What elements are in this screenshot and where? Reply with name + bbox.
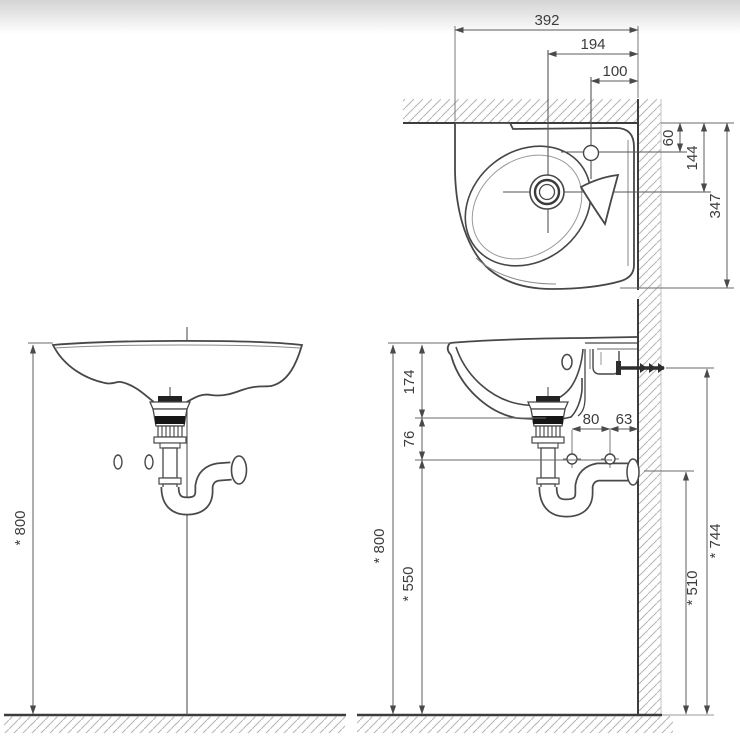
dim-plan-width: 392 <box>534 12 559 29</box>
side-fixing-lug <box>593 349 619 374</box>
front-fixing-slot-left <box>114 455 122 469</box>
technical-drawing-canvas: 392 194 100 60 144 347 <box>0 0 740 740</box>
dim-plan-depth: 347 <box>707 193 724 218</box>
dim-plan-wall-to-tap: 60 <box>660 130 677 147</box>
dim-side-bracket-height: * 744 <box>707 523 724 558</box>
dim-side-drain-to-fixing: 76 <box>401 431 418 448</box>
side-view: 174 76 * 550 * 800 80 63 * 744 * 510 <box>371 337 724 714</box>
side-tap-hole <box>562 355 572 370</box>
side-p-trap <box>548 459 639 508</box>
dim-side-rim-to-drain: 174 <box>401 369 418 394</box>
front-view: * 800 <box>12 327 302 715</box>
floor <box>4 715 714 733</box>
dim-plan-drain-to-wall: 194 <box>580 36 605 53</box>
dim-plan-tap-to-wall: 100 <box>602 63 627 80</box>
washbasin-drawing: 392 194 100 60 144 347 <box>0 0 740 740</box>
dim-side-fixing-height: * 550 <box>400 566 417 601</box>
plan-view: 392 194 100 60 144 347 <box>441 12 734 291</box>
dim-side-outlet-height: * 510 <box>684 570 701 605</box>
dim-side-hole-to-wall: 63 <box>616 411 633 428</box>
front-drain-assembly <box>150 387 190 489</box>
dim-side-hole-spacing: 80 <box>583 411 600 428</box>
dim-plan-wall-to-drain: 144 <box>684 145 701 170</box>
front-wall-rosette <box>232 456 247 484</box>
plan-back-wall-hatch <box>403 99 638 123</box>
floor-hatch-left <box>4 716 345 733</box>
floor-hatch-right <box>357 716 673 733</box>
side-deck-top <box>450 337 637 343</box>
side-wall-rosette <box>627 459 639 485</box>
front-basin-outline <box>53 341 302 403</box>
right-wall-hatch <box>638 99 661 715</box>
page-top-gradient <box>0 0 740 34</box>
front-dimensions: * 800 <box>12 343 53 714</box>
dim-front-rim-height: * 800 <box>12 510 29 545</box>
dim-side-rim-height: * 800 <box>371 528 388 563</box>
front-fixing-slot-right <box>145 455 153 469</box>
side-drain-assembly <box>528 387 568 489</box>
